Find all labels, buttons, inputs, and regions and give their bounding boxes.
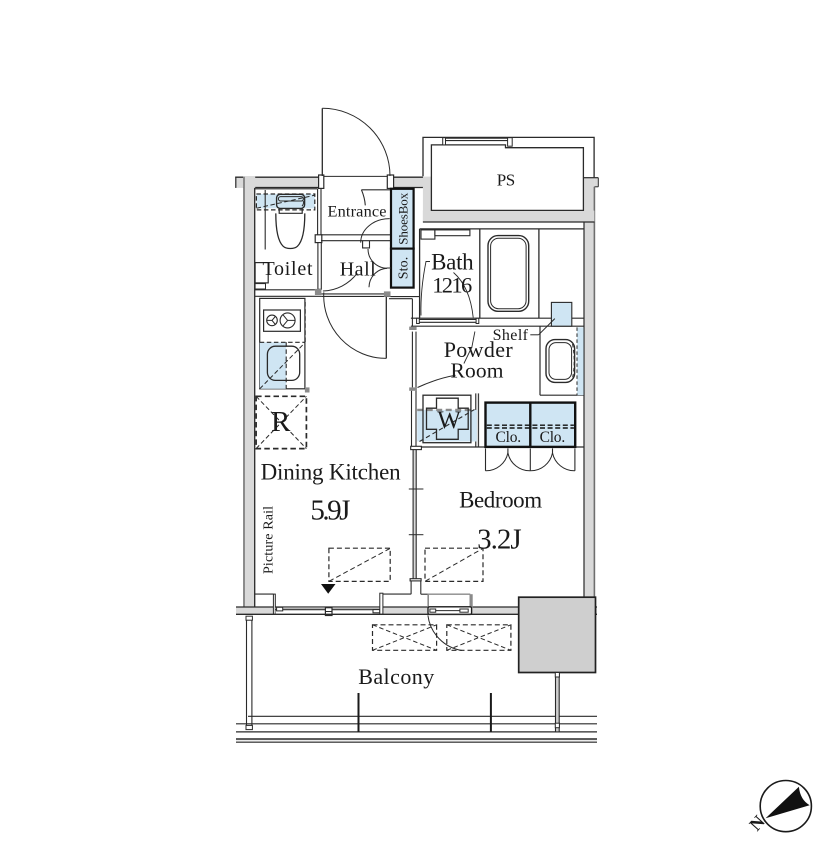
- svg-text:3.2J: 3.2J: [477, 524, 522, 556]
- svg-text:5.9J: 5.9J: [310, 495, 350, 527]
- svg-text:1216: 1216: [432, 273, 472, 298]
- svg-text:R: R: [271, 406, 291, 438]
- svg-text:Balcony: Balcony: [358, 664, 434, 689]
- svg-text:W: W: [437, 407, 461, 434]
- svg-text:Clo.: Clo.: [540, 429, 566, 446]
- svg-text:Bath: Bath: [431, 250, 474, 275]
- svg-text:Picture Rail: Picture Rail: [262, 506, 277, 574]
- svg-text:Shelf: Shelf: [493, 327, 529, 344]
- svg-text:ShoesBox: ShoesBox: [396, 192, 411, 245]
- svg-text:Hall: Hall: [340, 259, 376, 281]
- svg-text:Entrance: Entrance: [328, 202, 387, 221]
- svg-text:PS: PS: [497, 170, 516, 189]
- svg-text:Dining Kitchen: Dining Kitchen: [261, 460, 402, 485]
- svg-text:Bedroom: Bedroom: [459, 488, 542, 513]
- svg-text:Sto.: Sto.: [397, 257, 412, 280]
- svg-text:Room: Room: [451, 358, 504, 382]
- svg-text:Clo.: Clo.: [496, 429, 522, 446]
- svg-text:Toilet: Toilet: [263, 258, 313, 280]
